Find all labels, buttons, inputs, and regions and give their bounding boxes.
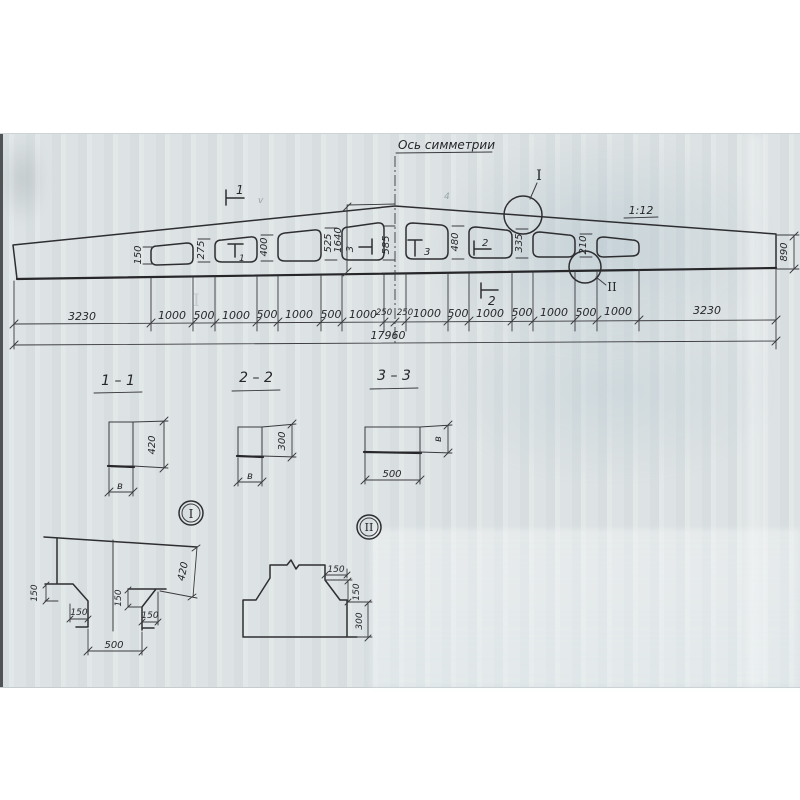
cut-mark-hole6-label: 2 bbox=[482, 238, 488, 249]
cut-mark-in-hole5 bbox=[408, 240, 422, 256]
section-1-1-outline bbox=[109, 422, 133, 466]
dim-1000: 1000 bbox=[222, 309, 250, 322]
cut-mark-in-hole4 bbox=[359, 239, 372, 254]
web-dimensions: 150 275 400 525 585 480 335 210 bbox=[133, 226, 592, 265]
detail-i-dim-width-label: 500 bbox=[104, 640, 123, 651]
cut-mark-hole2-label: 1 bbox=[239, 254, 245, 264]
detail-i-dim-depth-label: 420 bbox=[176, 561, 191, 582]
dim-1000: 1000 bbox=[349, 308, 377, 321]
slope-callout: 1:12 bbox=[624, 204, 658, 218]
section-1-1: 1 – 1 420 в bbox=[94, 373, 168, 496]
cut-mark-2-label: 2 bbox=[488, 294, 496, 308]
detail-i-dim-h2-label: 150 bbox=[141, 611, 158, 621]
detail-ii-leader bbox=[596, 277, 606, 285]
section-2-2: 2 – 2 300 в bbox=[232, 370, 296, 486]
detail-ii-ref: II bbox=[607, 280, 617, 294]
detail-i-dim-h1-label: 150 bbox=[70, 608, 87, 618]
dim-500: 500 bbox=[321, 308, 342, 321]
dim-1000: 1000 bbox=[285, 308, 313, 321]
web-dim-335: 335 bbox=[514, 233, 525, 252]
section-3-3: 3 – 3 500 в bbox=[361, 368, 452, 484]
web-opening-3 bbox=[278, 230, 321, 261]
detail-ii-dim-h-label: 150 bbox=[327, 565, 344, 575]
axis-label-underline bbox=[396, 152, 492, 153]
web-opening-2 bbox=[215, 237, 257, 262]
dim-1000: 1000 bbox=[540, 306, 568, 319]
end-height-dimension: 890 bbox=[777, 232, 799, 273]
cut-mark-hole5-label: 3 bbox=[424, 247, 430, 258]
section-1-1-height-label: 420 bbox=[147, 435, 158, 454]
dim-3230-right: 3230 bbox=[693, 304, 721, 317]
detail-i-dim-v2-label: 150 bbox=[114, 589, 124, 606]
dim-1000: 1000 bbox=[604, 305, 632, 318]
section-2-2-width-label: в bbox=[247, 471, 253, 482]
drawing-canvas: Ось симметрии 1:12 150 275 400 525 585 4… bbox=[0, 0, 800, 800]
section-3-3-height-label: в bbox=[433, 436, 444, 442]
section-2-2-underline bbox=[232, 390, 280, 391]
section-2-2-title: 2 – 2 bbox=[239, 370, 273, 386]
detail-ii-dim-v bbox=[325, 578, 352, 605]
cut-mark-1-label: 1 bbox=[236, 183, 244, 197]
web-opening-7 bbox=[533, 232, 575, 257]
beam-bottom-chord-edge bbox=[17, 268, 776, 279]
section-1-1-width-label: в bbox=[117, 481, 123, 492]
axis-label: Ось симметрии bbox=[398, 138, 495, 152]
detail-ii-dim-v-label: 150 bbox=[352, 583, 362, 600]
web-opening-6 bbox=[469, 227, 512, 258]
section-3-3-title: 3 – 3 bbox=[377, 368, 411, 384]
detail-i-ref: I bbox=[536, 168, 542, 184]
dim-1000: 1000 bbox=[476, 307, 504, 320]
end-dim-label: 890 bbox=[779, 242, 790, 261]
detail-ii-badge-label: II bbox=[365, 521, 374, 534]
web-opening-1 bbox=[151, 243, 193, 265]
detail-i-dim-v1 bbox=[43, 582, 58, 604]
pencil-mark: 4 bbox=[444, 192, 450, 202]
section-1-1-title: 1 – 1 bbox=[101, 373, 135, 389]
cut-mark-hole4-label: 3 bbox=[345, 246, 356, 252]
beam-elevation bbox=[13, 206, 776, 279]
dim-1000: 1000 bbox=[158, 309, 186, 322]
web-opening-8 bbox=[597, 237, 639, 257]
section-2-2-height-label: 300 bbox=[277, 431, 288, 450]
pencil-mark: v bbox=[258, 196, 264, 206]
section-2-2-cut-face bbox=[237, 456, 263, 457]
dim-500: 500 bbox=[257, 308, 278, 321]
section-3-3-cut-face bbox=[364, 452, 421, 453]
overall-dim-label: 17960 bbox=[371, 329, 406, 342]
dim-1000: 1000 bbox=[413, 307, 441, 320]
web-dim-400: 400 bbox=[259, 237, 270, 256]
web-dim-150: 150 bbox=[133, 245, 144, 264]
dim-500: 500 bbox=[512, 306, 533, 319]
dim-3230-left: 3230 bbox=[68, 310, 96, 323]
web-opening-4 bbox=[342, 223, 384, 260]
section-3-3-underline bbox=[370, 388, 418, 389]
detail-i-dim-v1-label: 150 bbox=[30, 584, 40, 601]
section-2-2-outline bbox=[238, 427, 262, 456]
detail-i-view: I 150 150 150 150 420 500 bbox=[30, 501, 203, 655]
detail-reference-i: I bbox=[504, 168, 542, 234]
detail-i-leader bbox=[530, 183, 537, 199]
scanned-drawing-sheet: Ось симметрии 1:12 150 275 400 525 585 4… bbox=[0, 0, 800, 800]
section-3-3-width-label: 500 bbox=[382, 469, 401, 480]
web-dim-275: 275 bbox=[196, 240, 207, 259]
dim-250: 250 bbox=[397, 308, 413, 318]
detail-i-badge-label: I bbox=[189, 507, 194, 521]
section-3-3-outline bbox=[365, 427, 420, 452]
bleed-through-mark: I bbox=[193, 291, 200, 311]
detail-ii-dim-height-label: 300 bbox=[355, 612, 365, 629]
ridge-dim-label: 1640 bbox=[333, 227, 344, 252]
beam-outline bbox=[13, 206, 776, 279]
web-dim-585: 585 bbox=[381, 235, 392, 254]
web-dim-480: 480 bbox=[450, 232, 461, 251]
dim-250: 250 bbox=[376, 308, 392, 318]
dim-500: 500 bbox=[576, 306, 597, 319]
detail-i-top-edge bbox=[44, 537, 197, 547]
overall-dimension: 17960 bbox=[10, 329, 780, 349]
slope-underline bbox=[624, 217, 658, 218]
detail-i-dim-v2 bbox=[125, 587, 142, 610]
detail-ii-view: II 150 150 300 bbox=[243, 515, 381, 641]
section-1-1-cut-face bbox=[108, 466, 134, 467]
dim-500: 500 bbox=[448, 307, 469, 320]
section-1-1-underline bbox=[94, 392, 142, 393]
detail-ii-circle bbox=[569, 251, 601, 283]
slope-label: 1:12 bbox=[629, 204, 654, 217]
